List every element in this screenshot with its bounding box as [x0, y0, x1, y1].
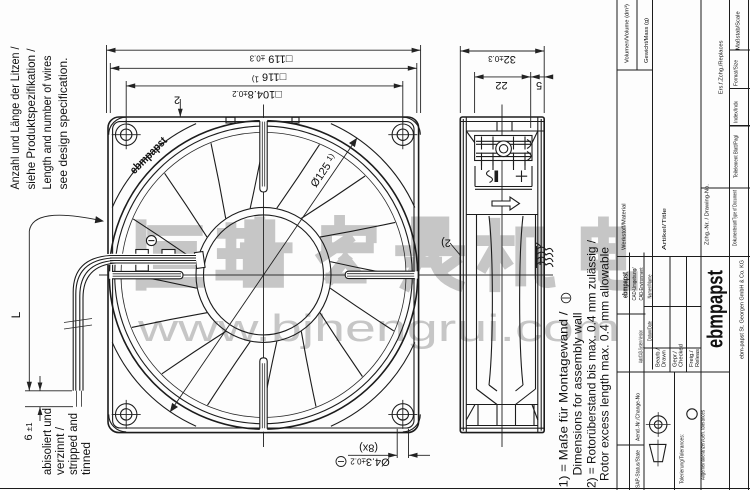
- svg-text:(8x): (8x): [359, 442, 378, 454]
- svg-text:Anzahl und Länge der Litzen /: Anzahl und Länge der Litzen /: [8, 46, 22, 190]
- svg-text:Rotor excess length max. 0.4 m: Rotor excess length max. 0.4 mm allowabl…: [598, 247, 612, 481]
- svg-text:Aend.-Nr./Change-No: Aend.-Nr./Change-No: [636, 393, 642, 441]
- svg-text:Releas.: Releas.: [695, 347, 701, 367]
- svg-text:CAD-Umgebung/: CAD-Umgebung/: [632, 267, 638, 300]
- svg-text:stripped and: stripped and: [68, 413, 80, 475]
- svg-text:Gewicht/Mass (g): Gewicht/Mass (g): [644, 18, 650, 63]
- svg-text:Artikel/Title: Artikel/Title: [662, 208, 668, 250]
- svg-text:Zchg.-Nr. / Drawing-No.: Zchg.-Nr. / Drawing-No.: [705, 184, 711, 245]
- svg-text:SAP-Status/State: SAP-Status/State: [636, 450, 642, 488]
- svg-text:□119 ±0.3: □119 ±0.3: [249, 52, 292, 64]
- svg-text:Dokumentenart/Type of Document: Dokumentenart/Type of Document: [733, 190, 739, 246]
- svg-text:1) = Maße für Montagewand /: 1) = Maße für Montagewand /: [557, 311, 571, 488]
- svg-text:2: 2: [174, 94, 180, 106]
- svg-text:L: L: [9, 311, 23, 318]
- svg-text:Tolerierung/Tolerances:: Tolerierung/Tolerances:: [680, 434, 686, 484]
- svg-text:ebm-papst St. Georgen GmbH & C: ebm-papst St. Georgen GmbH & Co. KG: [740, 260, 746, 359]
- svg-text:Maßstab/Scale: Maßstab/Scale: [736, 11, 742, 50]
- svg-text:Ers.f.Zchg./Replaces: Ers.f.Zchg./Replaces: [719, 40, 725, 94]
- svg-text:ebmpapst: ebmpapst: [703, 270, 728, 348]
- svg-text:abisoliert und: abisoliert und: [42, 408, 54, 475]
- svg-text:Namen/Name: Namen/Name: [648, 275, 654, 299]
- svg-text:verzinnt /: verzinnt /: [55, 426, 67, 475]
- svg-text:Checked: Checked: [679, 344, 685, 367]
- svg-text:Dimensions for assembly wall: Dimensions for assembly wall: [571, 313, 585, 476]
- svg-text:5: 5: [536, 79, 542, 91]
- svg-text:Werkstoff/Material: Werkstoff/Material: [622, 204, 628, 251]
- svg-text:see design specification.: see design specification.: [56, 58, 70, 190]
- svg-text:Teilelement Blatt/Pagl: Teilelement Blatt/Pagl: [734, 135, 740, 178]
- svg-text:□104.8±0.2: □104.8±0.2: [232, 88, 282, 100]
- svg-text:2) = Rotorüberstand bis max. 0: 2) = Rotorüberstand bis max. 0.4 mm zulä…: [585, 239, 599, 488]
- svg-text:Volumen/Volume (dm³): Volumen/Volume (dm³): [625, 4, 631, 63]
- svg-text:ebmpapst: ebmpapst: [621, 272, 630, 298]
- svg-text:Index/Indx: Index/Indx: [734, 101, 740, 123]
- svg-text:□116 1): □116 1): [251, 70, 286, 83]
- svg-text:Length and number of wires: Length and number of wires: [40, 56, 54, 190]
- svg-text:Datum/Date: Datum/Date: [648, 321, 654, 341]
- svg-text:Format/Size: Format/Size: [734, 60, 740, 86]
- svg-text:6 ±1: 6 ±1: [23, 422, 35, 441]
- svg-text:Drawn: Drawn: [662, 350, 668, 367]
- svg-text:2): 2): [441, 237, 451, 249]
- svg-text:Allgemeintoleranzen/Gen. toler: Allgemeintoleranzen/Gen. tolerances: [701, 410, 707, 480]
- svg-text:32±0.3: 32±0.3: [488, 53, 516, 65]
- svg-text:siehe Produktspezifikation /: siehe Produktspezifikation /: [24, 48, 38, 190]
- svg-text:AutoCAD-System Version: AutoCAD-System Version: [639, 330, 645, 363]
- svg-text:CAD-Environment: CAD-Environment: [639, 267, 645, 300]
- svg-text:Ø4.3±0.2: Ø4.3±0.2: [350, 456, 390, 468]
- svg-text:22: 22: [495, 79, 507, 91]
- svg-text:tinned: tinned: [81, 442, 93, 475]
